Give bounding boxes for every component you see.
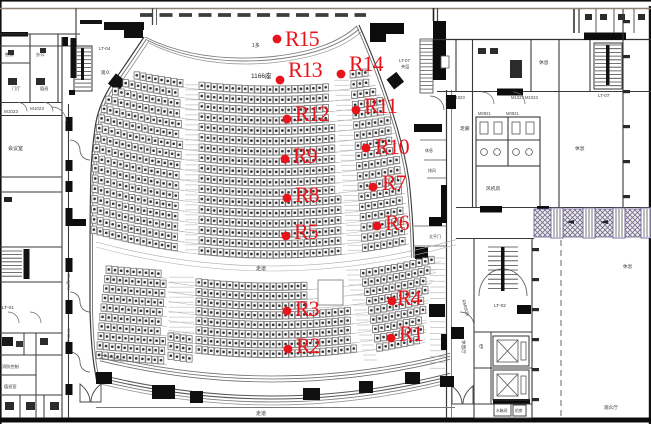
svg-text:R4: R4 xyxy=(397,285,422,310)
svg-text:走廊: 走廊 xyxy=(460,125,470,132)
svg-text:R15: R15 xyxy=(285,26,320,51)
svg-text:机房: 机房 xyxy=(515,408,523,413)
svg-text:R1: R1 xyxy=(399,321,423,346)
svg-text:R13: R13 xyxy=(288,57,323,82)
svg-text:LT-07: LT-07 xyxy=(399,58,410,63)
svg-text:太平门: 太平门 xyxy=(429,233,441,239)
svg-text:休息: 休息 xyxy=(425,147,433,153)
svg-text:电: 电 xyxy=(479,343,484,349)
svg-text:M1023 M1023: M1023 M1023 xyxy=(511,95,538,100)
svg-text:LT-02: LT-02 xyxy=(494,303,506,309)
svg-text:风机房: 风机房 xyxy=(486,185,501,192)
svg-text:夹层: 夹层 xyxy=(401,63,409,70)
svg-text:休息: 休息 xyxy=(539,59,549,66)
svg-text:走道: 走道 xyxy=(256,265,266,272)
svg-text:LT-01: LT-01 xyxy=(2,305,14,311)
svg-text:M0921: M0921 xyxy=(478,111,491,116)
svg-text:R7: R7 xyxy=(382,170,407,195)
svg-text:休息: 休息 xyxy=(575,145,585,152)
svg-text:走道: 走道 xyxy=(256,410,266,417)
svg-text:消防控制: 消防控制 xyxy=(2,363,19,370)
svg-text:排风: 排风 xyxy=(428,167,436,173)
svg-text:水箱间: 水箱间 xyxy=(496,408,508,413)
svg-text:R6: R6 xyxy=(385,210,410,235)
svg-text:1166座: 1166座 xyxy=(251,71,272,80)
svg-text:R5: R5 xyxy=(294,219,319,244)
svg-text:门厅: 门厅 xyxy=(12,85,20,92)
svg-text:M1023: M1023 xyxy=(4,109,18,114)
svg-text:R8: R8 xyxy=(295,182,320,207)
svg-text:R12: R12 xyxy=(295,101,329,126)
svg-text:M0921: M0921 xyxy=(506,111,519,116)
svg-text:R11: R11 xyxy=(364,93,397,118)
svg-text:1多: 1多 xyxy=(252,42,260,49)
svg-text:休息厅: 休息厅 xyxy=(460,340,467,354)
svg-text:值班室: 值班室 xyxy=(4,383,17,390)
svg-text:R14: R14 xyxy=(349,51,384,76)
svg-text:会议室: 会议室 xyxy=(8,145,23,152)
svg-text:R3: R3 xyxy=(295,296,320,321)
svg-text:LT-04: LT-04 xyxy=(99,46,111,51)
svg-text:R2: R2 xyxy=(296,333,320,358)
svg-text:LT-07: LT-07 xyxy=(598,93,610,98)
svg-text:值班: 值班 xyxy=(40,85,48,92)
svg-text:休息: 休息 xyxy=(623,263,633,270)
svg-text:R10: R10 xyxy=(375,134,410,159)
svg-text:R9: R9 xyxy=(293,143,318,168)
svg-text:M1023: M1023 xyxy=(30,106,44,111)
